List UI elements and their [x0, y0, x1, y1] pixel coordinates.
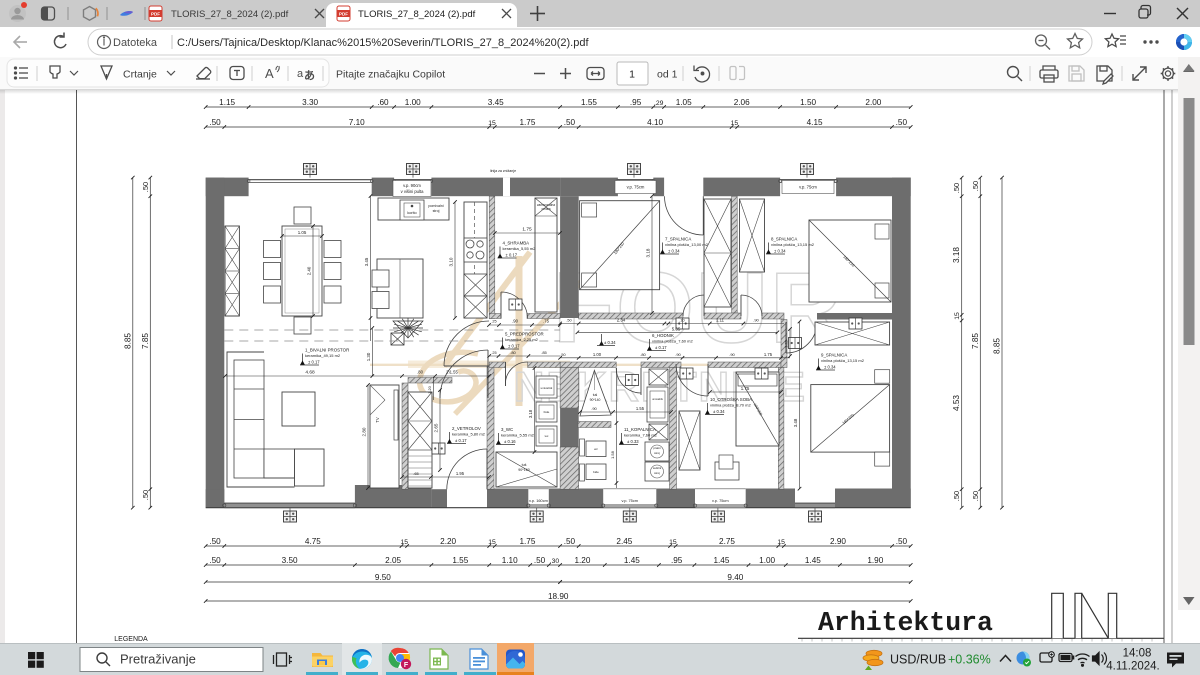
svg-text:.50: .50 [896, 537, 908, 546]
svg-text:linija za znižanje: linija za znižanje [490, 169, 516, 173]
svg-text:.80: .80 [640, 352, 646, 357]
svg-text:4.53: 4.53 [952, 395, 961, 411]
svg-text:TV: TV [375, 417, 380, 423]
svg-text:4_SHRAMBA: 4_SHRAMBA [503, 241, 530, 246]
svg-text:bide: bide [544, 410, 550, 414]
svg-text:.50: .50 [952, 183, 961, 193]
svg-text:.75: .75 [543, 319, 549, 324]
svg-text:9.40: 9.40 [727, 573, 743, 582]
svg-text:3.48: 3.48 [793, 418, 798, 427]
svg-text:15: 15 [669, 539, 677, 546]
svg-text:1.55: 1.55 [636, 406, 645, 411]
svg-text:stroj: stroj [654, 471, 660, 475]
svg-text:.60: .60 [377, 98, 389, 107]
svg-text:v.p. 75cm: v.p. 75cm [621, 498, 638, 503]
svg-text:2\1.55: 2\1.55 [446, 370, 458, 375]
svg-text:1.95: 1.95 [456, 471, 465, 476]
svg-text:1.20: 1.20 [784, 339, 789, 348]
svg-text:7.85: 7.85 [141, 333, 150, 349]
svg-text:vinilna plošča_13,00 m2: vinilna plošča_13,00 m2 [665, 242, 709, 247]
svg-text:1.00: 1.00 [593, 352, 602, 357]
svg-text:omara: omara [541, 207, 550, 211]
svg-text:wc: wc [594, 447, 598, 451]
svg-text:.50: .50 [209, 537, 221, 546]
svg-text:1.00: 1.00 [405, 98, 421, 107]
svg-text:3_WC: 3_WC [501, 427, 513, 432]
svg-text:.50: .50 [209, 118, 221, 127]
svg-text:+0.36%: +0.36% [948, 653, 991, 667]
svg-text:3.10: 3.10 [449, 257, 454, 266]
svg-text:2.80: 2.80 [362, 427, 367, 436]
svg-text:keramika_2,25 m2: keramika_2,25 m2 [505, 337, 539, 342]
svg-text:wc: wc [545, 434, 549, 438]
svg-text:v.p. 75cm: v.p. 75cm [799, 185, 817, 190]
svg-text:tuš: tuš [522, 463, 527, 467]
svg-text:.50: .50 [566, 319, 571, 323]
svg-text:.65: .65 [413, 471, 419, 476]
svg-text:± 0.34: ± 0.34 [668, 249, 680, 254]
svg-text:2.34: 2.34 [617, 318, 626, 323]
svg-text:vinilna plošča_13,15 m2: vinilna plošča_13,15 m2 [821, 358, 865, 363]
svg-text:1.00: 1.00 [759, 556, 775, 565]
svg-text:umivalnik: umivalnik [652, 397, 664, 401]
svg-text:sušilni: sušilni [653, 466, 662, 470]
svg-text:1.45: 1.45 [624, 556, 640, 565]
svg-text:Crtanje: Crtanje [123, 69, 157, 81]
svg-text:.50: .50 [141, 490, 150, 500]
svg-text:TLORIS_27_8_2024 (2).pdf: TLORIS_27_8_2024 (2).pdf [358, 9, 476, 20]
svg-text:8.85: 8.85 [993, 338, 1002, 354]
svg-text:15: 15 [731, 120, 739, 127]
svg-text:2.40: 2.40 [307, 266, 312, 275]
svg-text:umivalnik: umivalnik [541, 386, 553, 390]
svg-text:6_HODNIK: 6_HODNIK [652, 333, 674, 338]
svg-text:a: a [297, 68, 304, 80]
svg-text:1.20: 1.20 [574, 556, 590, 565]
svg-text:± 0.17: ± 0.17 [508, 344, 520, 349]
svg-text:3.30: 3.30 [302, 98, 318, 107]
svg-text:.25: .25 [491, 320, 496, 324]
svg-text:.85: .85 [541, 350, 547, 355]
svg-text:.95: .95 [671, 556, 683, 565]
svg-text:15: 15 [954, 312, 961, 320]
svg-text:1.58: 1.58 [610, 450, 615, 459]
svg-text:4.10: 4.10 [647, 118, 663, 127]
svg-text:.50: .50 [560, 353, 565, 357]
svg-text:1_BIVALNI PROSTOR: 1_BIVALNI PROSTOR [305, 348, 349, 353]
svg-text:5.35: 5.35 [672, 327, 681, 332]
svg-text:.50: .50 [564, 118, 576, 127]
svg-text:v višini pulta: v višini pulta [401, 189, 424, 194]
svg-text:4.68: 4.68 [305, 370, 315, 376]
svg-text:± 0.17: ± 0.17 [455, 438, 467, 443]
svg-text:vinilna plošča_7,60 m2: vinilna plošča_7,60 m2 [652, 338, 693, 343]
svg-text:± 0.34: ± 0.34 [774, 249, 786, 254]
svg-text:keramika_5,80 m2: keramika_5,80 m2 [452, 431, 486, 436]
svg-text:2.00: 2.00 [865, 98, 881, 107]
svg-text:1.20: 1.20 [428, 386, 432, 393]
svg-text:14:08: 14:08 [1123, 648, 1152, 660]
svg-text:2_VETROLOV: 2_VETROLOV [452, 426, 481, 431]
svg-text:.29: .29 [654, 100, 664, 107]
svg-text:A: A [265, 66, 274, 81]
svg-text:.50: .50 [896, 118, 908, 127]
svg-text:Datoteka: Datoteka [113, 37, 158, 49]
svg-text:10_OTROŠKA SOBA: 10_OTROŠKA SOBA [710, 397, 752, 402]
svg-text:3.45: 3.45 [364, 257, 369, 266]
svg-text:tuš: tuš [593, 393, 598, 397]
svg-text:11_KOPALNICA: 11_KOPALNICA [624, 427, 656, 432]
svg-text:1.05: 1.05 [676, 98, 692, 107]
svg-text:90*160: 90*160 [518, 468, 529, 472]
svg-text:.50: .50 [209, 556, 221, 565]
svg-text:.50: .50 [534, 556, 546, 565]
svg-text:7.85: 7.85 [971, 333, 980, 349]
svg-text:3.18: 3.18 [528, 409, 533, 418]
svg-text:1.15: 1.15 [219, 98, 235, 107]
svg-text:TLORIS_27_8_2024 (2).pdf: TLORIS_27_8_2024 (2).pdf [171, 9, 289, 20]
svg-text:7.10: 7.10 [349, 118, 365, 127]
svg-text:1.55: 1.55 [581, 98, 597, 107]
svg-text:Pretraživanje: Pretraživanje [120, 652, 196, 667]
svg-text:1.10: 1.10 [502, 556, 518, 565]
svg-text:3.50: 3.50 [282, 556, 298, 565]
svg-text:v.p. 160cm: v.p. 160cm [529, 498, 548, 503]
svg-text:1.45: 1.45 [713, 556, 729, 565]
svg-text:.50: .50 [141, 182, 150, 192]
svg-text:2.05: 2.05 [385, 556, 401, 565]
svg-text:Arhitektura: Arhitektura [818, 608, 993, 638]
svg-text:4.11.2024.: 4.11.2024. [1106, 661, 1160, 673]
svg-text:± 0.17: ± 0.17 [655, 345, 667, 350]
svg-text:2.06: 2.06 [734, 98, 750, 107]
svg-text:1.75: 1.75 [522, 227, 532, 233]
svg-text:あ: あ [304, 69, 315, 82]
svg-text:1.11: 1.11 [716, 318, 725, 323]
svg-text:.10: .10 [679, 319, 684, 323]
svg-text:4.75: 4.75 [305, 537, 321, 546]
svg-text:15: 15 [488, 539, 496, 546]
svg-text:.25: .25 [491, 351, 496, 355]
svg-text:2.20: 2.20 [440, 537, 456, 546]
svg-text:1.45: 1.45 [805, 556, 821, 565]
svg-text:3.18: 3.18 [952, 247, 961, 263]
svg-text:2.65: 2.65 [434, 423, 439, 432]
svg-text:1.75: 1.75 [741, 386, 750, 391]
svg-text:90*140: 90*140 [590, 398, 601, 402]
svg-text:1.30: 1.30 [366, 352, 371, 361]
svg-text:9_SPALNICA: 9_SPALNICA [821, 353, 847, 358]
svg-text:1.75: 1.75 [764, 352, 773, 357]
svg-text:18.90: 18.90 [548, 592, 569, 601]
svg-text:.80: .80 [510, 350, 516, 355]
svg-text:.95: .95 [630, 98, 642, 107]
svg-text:stroj: stroj [654, 451, 660, 455]
svg-text:LEGENDA: LEGENDA [114, 636, 148, 643]
svg-text:od 1: od 1 [657, 69, 678, 81]
svg-text:.50: .50 [564, 537, 576, 546]
svg-text:1.90: 1.90 [867, 556, 883, 565]
svg-text:3.45: 3.45 [488, 98, 504, 107]
svg-text:± 0.34: ± 0.34 [713, 409, 725, 414]
svg-text:.50: .50 [971, 181, 980, 191]
svg-text:2.45: 2.45 [616, 537, 632, 546]
svg-text:v.p. 75cm: v.p. 75cm [627, 185, 645, 190]
svg-text:.90: .90 [753, 318, 759, 323]
svg-text:1.55: 1.55 [452, 556, 468, 565]
svg-text:.80: .80 [417, 370, 423, 375]
svg-text:pralni: pralni [653, 446, 661, 450]
svg-text:8_SPALNICA: 8_SPALNICA [771, 237, 797, 242]
svg-text:2.75: 2.75 [719, 537, 735, 546]
svg-text:v.p. 75cm: v.p. 75cm [712, 498, 729, 503]
svg-text:bide: bide [593, 470, 599, 474]
svg-text:vinilna plošča_13,15 m2: vinilna plošča_13,15 m2 [771, 242, 815, 247]
svg-text:2.90: 2.90 [830, 537, 846, 546]
svg-text:keramika_7,60 m2: keramika_7,60 m2 [624, 432, 658, 437]
svg-text:keramika_5,55 m2: keramika_5,55 m2 [501, 432, 535, 437]
svg-text:1.50: 1.50 [800, 98, 816, 107]
svg-text:8.85: 8.85 [123, 333, 132, 349]
svg-text:± 0.34: ± 0.34 [824, 365, 836, 370]
svg-text:1.75: 1.75 [519, 118, 535, 127]
svg-text:1.05: 1.05 [298, 230, 307, 235]
svg-text:F: F [404, 662, 409, 669]
svg-text:v.p. 90cm: v.p. 90cm [403, 183, 421, 188]
svg-text:15: 15 [777, 539, 785, 546]
svg-text:5_PREDPROSTOR: 5_PREDPROSTOR [505, 332, 544, 337]
svg-text:PDF: PDF [151, 12, 160, 17]
svg-text:USD/RUB: USD/RUB [890, 653, 946, 667]
svg-text:vinilna plošča_8,70 m2: vinilna plošča_8,70 m2 [710, 402, 751, 407]
svg-text:7_SPALNICA: 7_SPALNICA [665, 237, 691, 242]
svg-text:C:/Users/Tajnica/Desktop/Klana: C:/Users/Tajnica/Desktop/Klanac%2015%20S… [177, 37, 589, 49]
svg-text:.50: .50 [971, 491, 980, 501]
svg-text:15: 15 [401, 539, 409, 546]
svg-text:.30: .30 [550, 558, 560, 565]
svg-text:± 0.17: ± 0.17 [506, 253, 518, 258]
svg-text:.90: .90 [729, 352, 735, 357]
svg-text:± 0.16: ± 0.16 [504, 439, 516, 444]
svg-text:± 0.17: ± 0.17 [308, 360, 320, 365]
svg-text:± 0.34: ± 0.34 [604, 340, 616, 345]
svg-text:4.15: 4.15 [807, 118, 823, 127]
svg-text:1.75: 1.75 [519, 537, 535, 546]
svg-text:keramika_5,55 m2: keramika_5,55 m2 [503, 246, 537, 251]
svg-text:stroj: stroj [433, 209, 440, 213]
svg-text:pomivalni: pomivalni [428, 204, 443, 208]
svg-text:Pitajte značajku Copilot: Pitajte značajku Copilot [336, 69, 445, 81]
svg-text:9.50: 9.50 [375, 573, 391, 582]
svg-text:keramika_49,15 m2: keramika_49,15 m2 [305, 353, 341, 358]
svg-text:1: 1 [629, 69, 635, 81]
svg-text:korito: korito [407, 211, 416, 215]
svg-text:15: 15 [488, 120, 496, 127]
svg-text:± 0.33: ± 0.33 [627, 439, 639, 444]
svg-text:PDF: PDF [339, 12, 348, 17]
svg-text:.90: .90 [675, 352, 681, 357]
svg-text:.90: .90 [512, 319, 518, 324]
svg-text:.90: .90 [591, 406, 597, 411]
svg-text:3.18: 3.18 [646, 248, 651, 257]
svg-text:.50: .50 [952, 491, 961, 501]
